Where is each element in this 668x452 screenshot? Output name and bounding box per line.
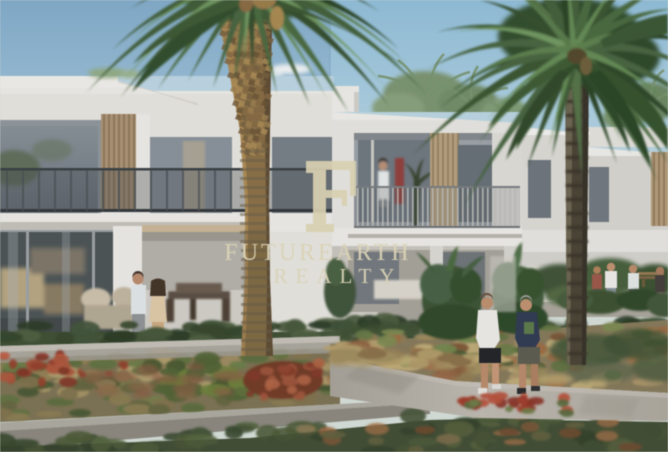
svg-text:FUTUREARTH: FUTUREARTH [224, 240, 411, 266]
svg-text:REALTY: REALTY [274, 264, 403, 288]
